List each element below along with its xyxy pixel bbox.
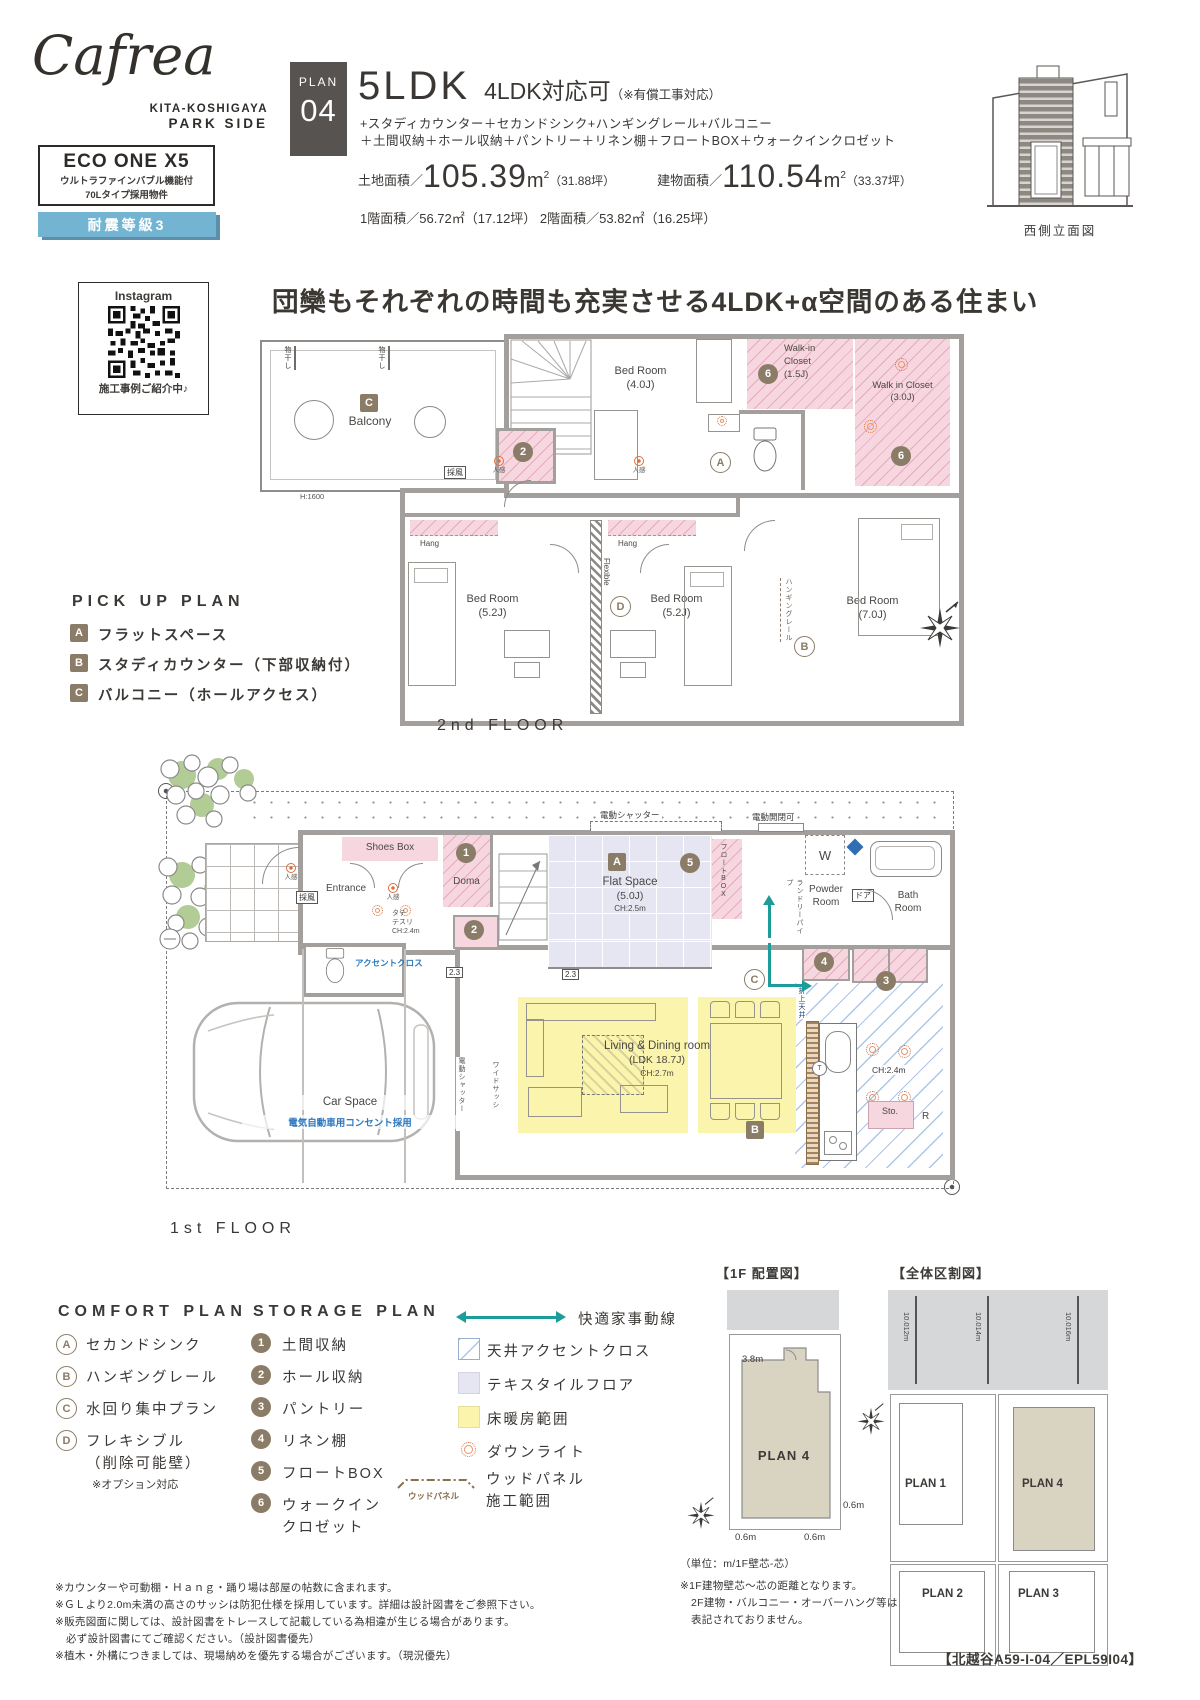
floor-heating-label: 床暖房範囲 xyxy=(487,1408,570,1429)
document-code: 【北越谷A59-I-04／EPL59I04】 xyxy=(938,1648,1143,1668)
pickup-plan-title: PICK UP PLAN xyxy=(72,593,245,611)
land-area-label: 土地面積／ xyxy=(358,170,423,189)
storage-badge-4: 4 xyxy=(814,952,834,972)
footprint-outline xyxy=(1009,1571,1095,1653)
flow-arrow-stem xyxy=(768,904,771,938)
float-box-label: フロートBOX xyxy=(718,843,728,899)
storage-badge-2: 2 xyxy=(513,442,533,462)
auto-open-label: 電動開閉可 xyxy=(750,811,797,823)
carport-divider xyxy=(404,949,406,1183)
chair-icon xyxy=(760,1001,780,1018)
bedroom-4j-label: Bed Room(4.0J) xyxy=(588,364,693,393)
bldg-area-value: 110.54 xyxy=(722,158,824,195)
plan-title-row: 5LDK 4LDK対応可 （※有償工事対応） xyxy=(358,64,721,109)
doma-label: Doma xyxy=(443,875,490,888)
wic-30-label: Walk in Closet(3.0J) xyxy=(855,380,950,405)
low-table-icon xyxy=(620,1085,668,1113)
washer-box: W xyxy=(805,835,845,875)
balcony-height-label: H:1600 xyxy=(300,492,324,501)
shoes-box-label: Shoes Box xyxy=(342,841,438,854)
laundry-pole-label: 物干し xyxy=(376,346,390,370)
pickup-item-badge: C xyxy=(70,684,88,702)
comfort-item-badge: A xyxy=(56,1334,77,1355)
hanging-rail-label: ハンギングレール xyxy=(780,578,793,642)
chair-icon xyxy=(735,1001,755,1018)
headline: 団欒もそれぞれの時間も充実させる4LDK+α空間のある住まい xyxy=(272,280,1038,319)
seismic-badge: 耐震等級3 xyxy=(38,212,216,237)
second-floor-plan: 物干し 物干し C Balcony 採風 H:1600 2 Bed Room(4… xyxy=(258,330,958,730)
coffered-ceiling-label: 折上天井 xyxy=(796,987,806,1019)
comfort-item-badge: B xyxy=(56,1366,77,1387)
flat-space-extension xyxy=(548,941,712,969)
site-1f-dim-top: 3.8m xyxy=(742,1354,763,1365)
flat-space-label: Flat Space (5.0J) CH:2.5m xyxy=(548,875,712,914)
storage-item-badge: 5 xyxy=(251,1461,271,1481)
plan-number-box: PLAN 04 xyxy=(290,62,347,156)
flow-legend-arrow xyxy=(556,1311,566,1323)
area-row: 土地面積／ 105.39 m2 （31.88坪） 建物面積／ 110.54 m2… xyxy=(358,158,912,195)
downlight-icon xyxy=(898,1045,911,1058)
land-area-unit: m xyxy=(527,170,544,193)
entrance-label: Entrance xyxy=(326,883,366,894)
site-note: （単位：m/1F壁芯-芯） xyxy=(680,1556,795,1571)
chair-icon xyxy=(760,1103,780,1120)
storage-badge-5: 5 xyxy=(680,853,700,873)
hang-label: Hang xyxy=(420,539,439,548)
downlight-icon xyxy=(717,416,727,426)
lot-corner-marker xyxy=(944,1179,960,1195)
bed7-wall xyxy=(736,493,740,517)
bldg-area-unit: m xyxy=(824,170,841,193)
pickup-badge-c: C xyxy=(360,394,378,412)
pickup-item-badge: A xyxy=(70,624,88,642)
flyer-page: Cafrea KITA-KOSHIGAYA PARK SIDE ECO ONE … xyxy=(0,0,1200,1700)
wood-panel-tag: ウッドパネル xyxy=(408,1490,459,1502)
eco-line1: ウルトラファインバブル機能付 xyxy=(40,173,213,187)
comfort-badge-b: B xyxy=(794,636,815,657)
bed-icon xyxy=(684,566,732,686)
footer-note: 必ず設計図書にてご確認ください。（設計図書優先） xyxy=(66,1631,320,1646)
ev-outlet-note: 電気自動車用コンセント採用 xyxy=(242,1115,458,1129)
flow-arrow-stem xyxy=(768,984,804,987)
road-dim-arrow xyxy=(1077,1296,1079,1384)
refrigerator-label: R xyxy=(922,1111,929,1122)
site-overall-title: 【全体区割図】 xyxy=(892,1263,990,1282)
hang-rail xyxy=(410,520,498,536)
bldg-area-label: 建物面積／ xyxy=(657,170,722,189)
road-dim-label: 10.012m xyxy=(902,1312,911,1341)
vent-label: 採風 xyxy=(444,466,466,479)
flexible-label: Flexible xyxy=(602,558,611,586)
plan-no: 04 xyxy=(290,93,347,129)
bldg-area-tsubo: （33.37坪） xyxy=(846,172,912,189)
balcony-label: Balcony xyxy=(320,414,420,430)
side-shutter-label: 電動シャッター xyxy=(456,1057,466,1131)
storage-item-label2: クロゼット xyxy=(282,1516,365,1537)
site-note: 表記されておりません。 xyxy=(691,1612,809,1627)
storage-badge-2: 2 xyxy=(464,920,484,940)
brand-sub1: KITA-KOSHIGAYA xyxy=(110,103,268,115)
downlight-icon xyxy=(895,358,908,371)
sofa-icon xyxy=(526,1003,656,1021)
downlight-icon xyxy=(864,420,877,433)
title-convert-note: （※有償工事対応） xyxy=(611,84,721,103)
storage-badge-6: 6 xyxy=(891,446,911,466)
desk-icon xyxy=(504,630,550,658)
bathtub-icon xyxy=(870,841,942,877)
car-space-label: Car Space xyxy=(290,1095,410,1110)
pickup-item-label: フラットスペース xyxy=(98,624,228,645)
brand-sub2: PARK SIDE xyxy=(110,116,268,131)
site-1f-dim-bl: 0.6m xyxy=(735,1532,756,1543)
pickup-badge-b: B xyxy=(746,1121,764,1139)
chair-icon xyxy=(620,662,646,678)
flow-legend-label: 快適家事動線 xyxy=(578,1308,677,1329)
downlight-label: ダウンライト xyxy=(487,1441,586,1462)
road-dim-arrow xyxy=(915,1296,917,1384)
motion-sensor: 人感 xyxy=(484,456,514,475)
shutter-label: 電動シャッター xyxy=(598,809,662,821)
shutter-bracket xyxy=(590,821,722,831)
pickup-badge-a: A xyxy=(608,853,626,871)
storage-item-badge: 1 xyxy=(251,1333,271,1353)
handrail-label: タテテスリCH:2.4m xyxy=(392,909,420,936)
storage-item-badge: 2 xyxy=(251,1365,271,1385)
footer-note: ※販売図面に関しては、設計図書をトレースして記載している為相違が生じる場合があり… xyxy=(55,1614,515,1629)
eco-one-box: ECO ONE X5 ウルトラファインバブル機能付 70Lタイプ採用物件 xyxy=(38,145,215,206)
chair-icon xyxy=(514,662,540,678)
bath-room-label: BathRoom xyxy=(878,889,938,915)
pickup-item-badge: B xyxy=(70,654,88,672)
floor-heating-swatch xyxy=(458,1406,480,1428)
flow-legend-line xyxy=(465,1316,557,1319)
comfort-item-label: ハンギングレール xyxy=(86,1366,218,1387)
instagram-caption: 施工事例ご紹介中♪ xyxy=(79,381,208,396)
eco-title: ECO ONE X5 xyxy=(40,151,213,173)
comfort-item-badge: C xyxy=(56,1398,77,1419)
stairs-1f xyxy=(498,853,548,941)
comfort-badge-c: C xyxy=(744,969,765,990)
road-dim-arrow xyxy=(987,1296,989,1384)
compass-icon xyxy=(856,1402,886,1438)
storage-item-label: パントリー xyxy=(282,1398,365,1419)
footprint-outline xyxy=(899,1571,985,1653)
downlight-swatch xyxy=(461,1442,476,1457)
flexible-wall xyxy=(590,520,602,714)
compass-icon xyxy=(686,1496,716,1532)
comfort-plan-title: COMFORT PLAN xyxy=(58,1303,247,1321)
first-floor-plan: 電動シャッター 電動開閉可 Shoes Box Entrance 人感 採風 人… xyxy=(150,735,960,1200)
corridor-wall xyxy=(405,513,740,517)
wood-panel-label2: 施工範囲 xyxy=(486,1490,552,1511)
ceiling-accent-swatch xyxy=(458,1338,480,1360)
west-elevation-drawing xyxy=(985,58,1135,216)
toilet-icon xyxy=(750,426,780,474)
desk-icon xyxy=(610,630,656,658)
dining-table-icon xyxy=(710,1023,782,1099)
bed-icon xyxy=(408,562,456,686)
second-floor-caption: 2nd FLOOR xyxy=(437,717,568,735)
wood-panel-label1: ウッドパネル xyxy=(486,1468,585,1489)
title-convert: 4LDK対応可 xyxy=(484,72,611,106)
site-note: 2F建物・バルコニー・オーバーハング等は xyxy=(691,1595,898,1610)
textile-floor-label: テキスタイルフロア xyxy=(487,1374,635,1395)
road-dim-label: 10.016m xyxy=(1064,1312,1073,1341)
hang-rail xyxy=(608,520,696,536)
compass-icon xyxy=(918,600,962,652)
comfort-badge-a: A xyxy=(710,452,731,473)
textile-floor-swatch xyxy=(458,1372,480,1394)
instagram-title: Instagram xyxy=(79,289,208,303)
storage-item-label: ウォークイン xyxy=(282,1494,381,1515)
ceiling-accent-label: 天井アクセントクロス xyxy=(487,1340,651,1361)
motion-sensor: 人感 xyxy=(378,883,408,902)
site-1f-dim-br: 0.6m xyxy=(804,1532,825,1543)
storage-badge-1: 1 xyxy=(456,843,476,863)
storage-item-label: ホール収納 xyxy=(282,1366,365,1387)
plan-label: PLAN xyxy=(290,75,347,89)
brand-logo: Cafrea xyxy=(32,24,272,102)
motion-sensor: 人感 xyxy=(624,456,654,475)
pickup-item-label: バルコニー（ホールアクセス） xyxy=(98,684,328,705)
tv-board-icon xyxy=(528,1087,582,1117)
elevation-caption: 西側立面図 xyxy=(1000,220,1120,239)
road-dim-label: 10.014m xyxy=(974,1312,983,1341)
storage-item-badge: 6 xyxy=(251,1493,271,1513)
powder-room-label: PowderRoom xyxy=(800,883,852,909)
sofa-icon xyxy=(526,1019,544,1077)
features-line2: ＋土間収納＋ホール収納＋パントリー＋リネン棚＋フロートBOX＋ウォークインクロゼ… xyxy=(360,130,896,149)
kitchen-sink-icon xyxy=(825,1031,851,1073)
storage-plan-title: STORAGE PLAN xyxy=(253,1303,440,1321)
hang-label: Hang xyxy=(618,539,637,548)
floor-areas-line: 1階面積／56.72㎡（17.12坪） 2階面積／53.82㎡（16.25坪） xyxy=(360,208,716,227)
accent-cross-label: アクセントクロス xyxy=(355,957,423,969)
faucet-icon: T xyxy=(812,1061,827,1076)
sto-label: Sto. xyxy=(868,1106,912,1118)
storage-item-badge: 4 xyxy=(251,1429,271,1449)
stove-icon xyxy=(824,1131,852,1155)
site-note: ※1F建物壁芯～芯の距離となります。 xyxy=(680,1578,863,1593)
wood-panel-wall xyxy=(806,1021,819,1165)
lot-plan2-label: PLAN 2 xyxy=(922,1588,963,1600)
storage-item-label: 土間収納 xyxy=(282,1334,348,1355)
kitchen-height-label: CH:2.4m xyxy=(872,1065,906,1075)
comfort-item-label: フレキシブル xyxy=(86,1430,185,1451)
title-ldk: 5LDK xyxy=(358,64,470,109)
pickup-item-label: スタディカウンター（下部収納付） xyxy=(98,654,361,675)
site-1f-footprint xyxy=(734,1344,834,1522)
footprint-outline xyxy=(899,1403,963,1525)
laundry-pole-label: 物干し xyxy=(282,346,296,370)
comfort-item-label: 水回り集中プラン xyxy=(86,1398,218,1419)
footer-note: ※植木・外構につきましては、現場納めを優先する場合がございます。（現況優先） xyxy=(55,1648,457,1663)
qr-code xyxy=(108,306,180,378)
comfort-item-badge: D xyxy=(56,1430,77,1451)
carport-divider xyxy=(302,949,304,1183)
site-1f-plan-label: PLAN 4 xyxy=(744,1448,824,1463)
site-1f-dim-right: 0.6m xyxy=(843,1500,864,1511)
storage-item-label: リネン棚 xyxy=(282,1430,348,1451)
comfort-item-label2: （削除可能壁） xyxy=(86,1452,202,1473)
trees-icon xyxy=(156,749,260,835)
chair-icon xyxy=(710,1001,730,1018)
chair-icon xyxy=(710,1103,730,1120)
flow-arrow-stem xyxy=(768,943,771,987)
downlight-icon xyxy=(372,905,383,916)
lot-plan1-label: PLAN 1 xyxy=(905,1478,946,1490)
car-icon xyxy=(178,973,450,1171)
chair-icon xyxy=(735,1103,755,1120)
land-area-tsubo: （31.88坪） xyxy=(549,172,615,189)
closet-icon xyxy=(696,339,732,403)
storage-item-label: フロートBOX xyxy=(282,1462,385,1483)
vent-label: 採風 xyxy=(296,891,318,904)
eco-line2: 70Lタイプ採用物件 xyxy=(40,187,213,201)
land-area-value: 105.39 xyxy=(423,158,527,195)
footer-note: ※ＧＬより2.0m未満の高さのサッシは防犯仕様を採用しています。詳細は設計図書を… xyxy=(55,1597,541,1612)
wide-sash-label: ワイドサッシ xyxy=(490,1061,500,1111)
instagram-box: Instagram 施工事例ご紹介中♪ xyxy=(78,282,209,415)
site-overall-road xyxy=(888,1290,1108,1390)
comfort-badge-d: D xyxy=(610,596,631,617)
wic-15-label: Walk-inCloset(1.5J) xyxy=(784,343,815,381)
first-floor-caption: 1st FLOOR xyxy=(170,1220,296,1238)
window-icon xyxy=(758,823,804,832)
flow-arrow-head xyxy=(802,980,812,992)
site-1f-title: 【1F 配置図】 xyxy=(716,1263,808,1282)
comfort-item-label: セカンドシンク xyxy=(86,1334,202,1355)
storage-badge-6: 6 xyxy=(758,364,778,384)
footer-note: ※カウンターや可動棚・Ｈａｎｇ・踊り場は部屋の帖数に含まれます。 xyxy=(55,1580,398,1595)
lot-plan3-label: PLAN 3 xyxy=(1018,1588,1059,1600)
downlight-icon xyxy=(866,1043,879,1056)
dim-marker: 2.3 xyxy=(562,969,579,980)
lot-plan4-label: PLAN 4 xyxy=(1022,1478,1063,1490)
storage-item-badge: 3 xyxy=(251,1397,271,1417)
site-1f-road xyxy=(727,1290,839,1330)
comfort-item-note: ※オプション対応 xyxy=(92,1476,178,1492)
